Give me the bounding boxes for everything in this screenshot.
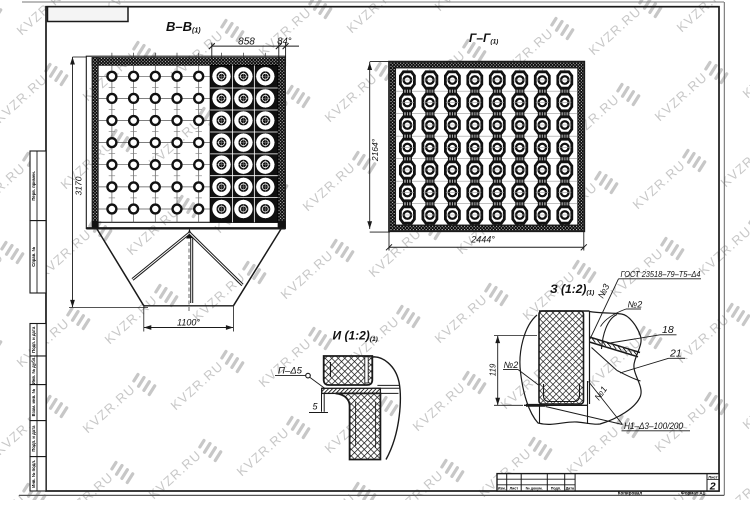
- svg-text:119: 119: [489, 363, 498, 376]
- svg-text:Дата: Дата: [566, 486, 575, 490]
- svg-text:№2: №2: [628, 300, 643, 310]
- svg-text:№ докум.: № докум.: [526, 486, 543, 490]
- svg-text:Копировал: Копировал: [618, 491, 643, 496]
- svg-text:Инв. № подл.: Инв. № подл.: [31, 460, 36, 488]
- svg-text:Перв. примен.: Перв. примен.: [31, 171, 36, 201]
- svg-text:Лист: Лист: [510, 486, 519, 490]
- svg-text:ГОСТ 23518–79–Т5–Δ4: ГОСТ 23518–79–Т5–Δ4: [621, 269, 701, 279]
- svg-text:84°: 84°: [277, 36, 292, 47]
- svg-text:21: 21: [669, 348, 682, 360]
- svg-text:1100°: 1100°: [177, 317, 200, 327]
- svg-text:2444°: 2444°: [470, 235, 495, 245]
- svg-text:Подп.: Подп.: [551, 486, 561, 490]
- svg-text:3170: 3170: [74, 176, 84, 195]
- svg-text:Изм.: Изм.: [498, 486, 506, 490]
- svg-text:Подп. и дата: Подп. и дата: [31, 425, 36, 452]
- svg-text:Справ. №: Справ. №: [31, 246, 36, 266]
- svg-text:Формат А1: Формат А1: [681, 491, 706, 496]
- svg-text:2164°: 2164°: [370, 138, 380, 162]
- svg-text:П–Δ5: П–Δ5: [278, 366, 303, 376]
- svg-text:858: 858: [238, 36, 255, 47]
- svg-text:2: 2: [709, 481, 716, 493]
- svg-text:Лист: Лист: [708, 474, 717, 479]
- svg-text:18: 18: [662, 324, 674, 336]
- svg-text:Взам. инв. №: Взам. инв. №: [31, 389, 36, 417]
- svg-text:Подп. и дата: Подп. и дата: [31, 326, 36, 353]
- svg-text:№2: №2: [504, 360, 519, 370]
- svg-text:Н1–Δ3–100/200: Н1–Δ3–100/200: [624, 421, 683, 431]
- svg-text:Инв. № дубл.: Инв. № дубл.: [31, 356, 36, 384]
